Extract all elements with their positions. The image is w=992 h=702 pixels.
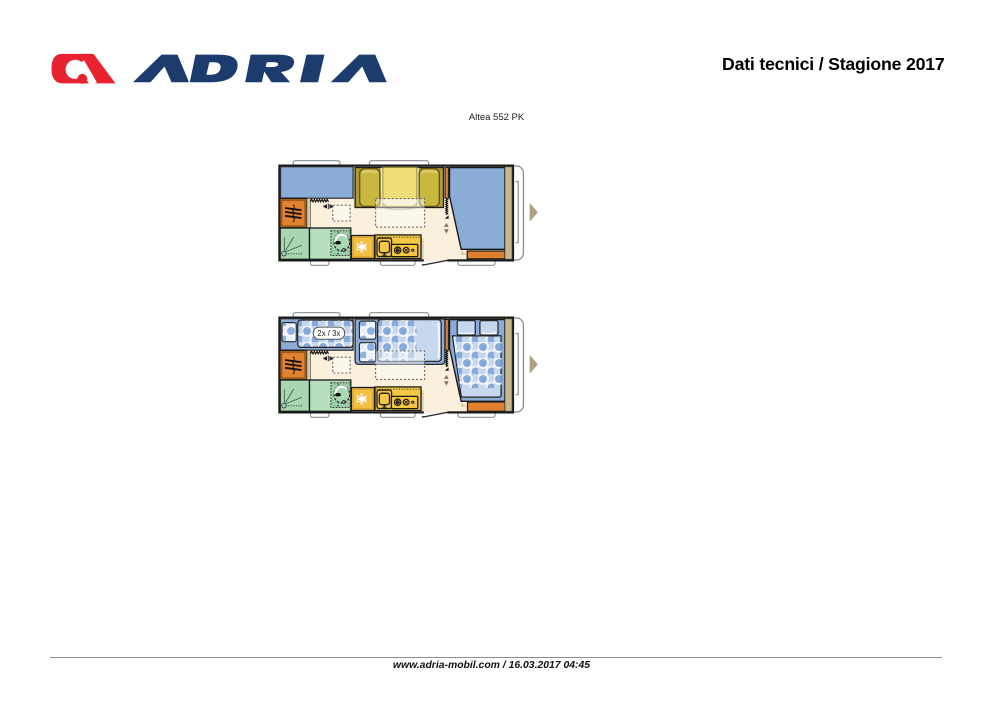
svg-text:2x / 3x: 2x / 3x: [317, 329, 340, 338]
